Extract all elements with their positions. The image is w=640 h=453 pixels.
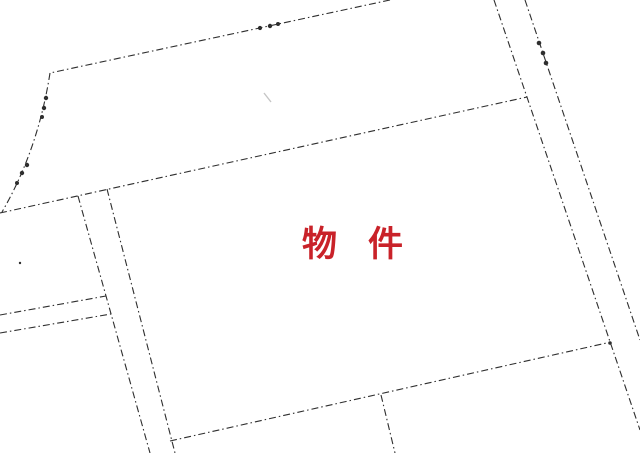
faint-smudge <box>264 93 271 102</box>
survey-point-dot <box>544 61 549 66</box>
south-parcel-divider <box>381 395 395 453</box>
survey-point-dot <box>541 51 546 56</box>
survey-point-dot <box>258 26 262 30</box>
survey-point-dot <box>42 106 46 110</box>
branch-road-lower-edge <box>0 314 111 333</box>
main-diagonal-boundary <box>0 97 527 213</box>
survey-point-dot <box>19 262 21 264</box>
branch-road-upper-edge <box>0 296 106 315</box>
survey-point-dot <box>268 24 272 28</box>
property-label: 物 件 <box>302 227 401 264</box>
west-boundary-curve <box>2 73 50 212</box>
west-road-left-edge <box>78 196 150 453</box>
west-road-right-edge <box>107 189 175 453</box>
survey-point-dot <box>20 171 24 175</box>
survey-point-dot <box>40 115 44 119</box>
survey-point-dot <box>537 41 542 46</box>
north-boundary-line <box>50 0 390 73</box>
parcel-south-boundary <box>170 342 611 441</box>
survey-point-dot <box>276 22 280 26</box>
survey-point-dot <box>25 163 29 167</box>
cadastral-map: 物 件 <box>0 0 640 453</box>
survey-point-dot <box>15 181 19 185</box>
east-road-left-edge <box>494 0 640 430</box>
survey-point-dot <box>44 96 48 100</box>
survey-point-dot <box>608 341 612 345</box>
